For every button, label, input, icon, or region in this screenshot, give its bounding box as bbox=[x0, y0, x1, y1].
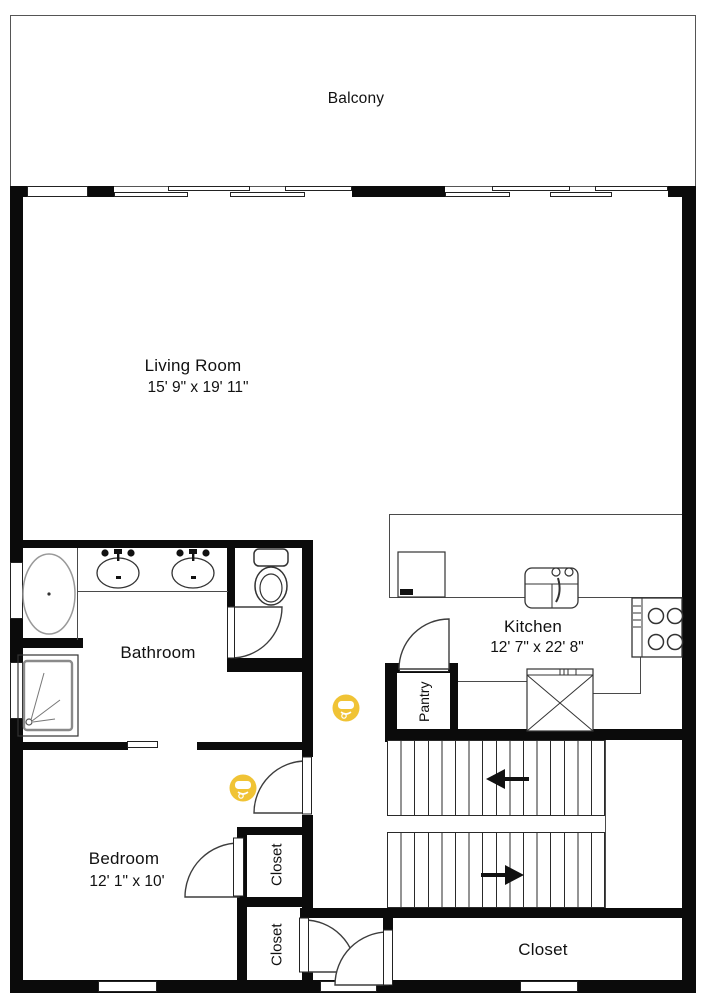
closet-upper-door-leaf bbox=[234, 838, 244, 896]
dishwasher bbox=[398, 552, 445, 597]
vanity-sink-right bbox=[172, 549, 214, 588]
pantry-label: Pantry bbox=[411, 672, 437, 732]
hall-closet-door-leaf bbox=[384, 930, 393, 985]
stairs-up-arrow bbox=[486, 769, 529, 789]
toilet bbox=[254, 549, 288, 605]
bedroom-closet-upper-label: Closet bbox=[261, 832, 293, 898]
vanity-sink-left bbox=[97, 549, 139, 588]
bathtub bbox=[23, 554, 75, 634]
bedroom-door-swing bbox=[254, 761, 306, 813]
toilet-room-door-swing bbox=[231, 607, 282, 658]
kitchen-sink bbox=[525, 568, 578, 608]
smoke-detector-icon-bedroom bbox=[230, 775, 257, 802]
bedroom-dims: 12' 1" x 10' bbox=[47, 873, 207, 891]
balcony-label: Balcony bbox=[306, 90, 406, 108]
pantry-door-swing bbox=[399, 619, 449, 669]
kitchen-label: Kitchen bbox=[453, 617, 613, 637]
hall-closet-label: Closet bbox=[498, 940, 588, 960]
smoke-detector-icon-hall bbox=[333, 695, 360, 722]
stairs-down-arrow bbox=[481, 865, 524, 885]
kitchen-dims: 12' 7" x 22' 8" bbox=[452, 639, 622, 657]
closet-lower-door-leaf bbox=[300, 918, 309, 972]
bedroom-label: Bedroom bbox=[44, 849, 204, 869]
floor-plan: Balcony Living Room 15' 9" x 19' 11" Bat… bbox=[0, 0, 705, 1000]
stove bbox=[632, 598, 683, 657]
bathroom-label: Bathroom bbox=[78, 643, 238, 663]
refrigerator bbox=[527, 669, 593, 731]
living-room-dims: 15' 9" x 19' 11" bbox=[113, 379, 283, 397]
bedroom-door-leaf bbox=[303, 757, 312, 814]
shower bbox=[18, 655, 78, 736]
living-room-label: Living Room bbox=[113, 356, 273, 376]
bedroom-closet-lower-label: Closet bbox=[261, 912, 293, 978]
